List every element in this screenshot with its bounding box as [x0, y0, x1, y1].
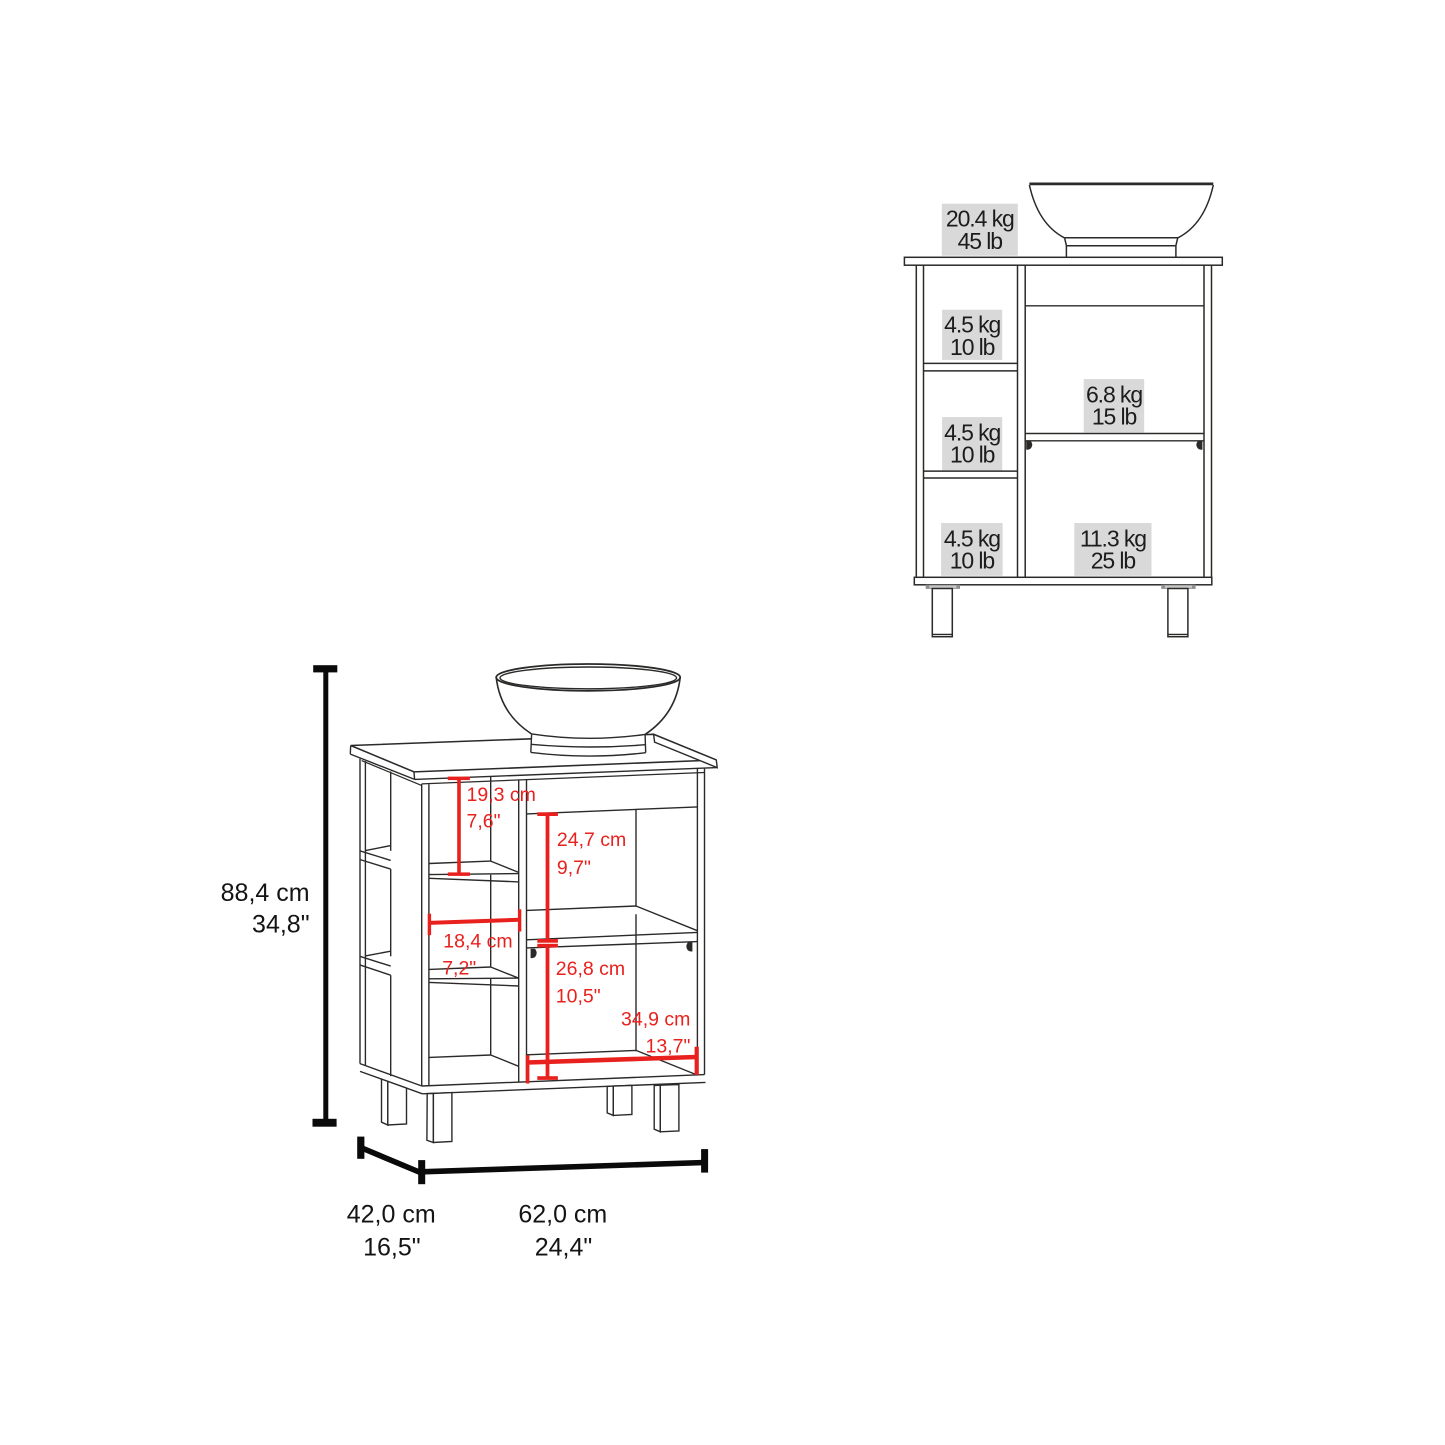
- svg-text:18,4 cm: 18,4 cm: [443, 930, 512, 952]
- svg-text:15 lb: 15 lb: [1092, 404, 1137, 430]
- svg-text:10 lb: 10 lb: [950, 442, 995, 468]
- svg-text:16,5": 16,5": [363, 1234, 421, 1262]
- svg-text:10,5": 10,5": [556, 986, 601, 1008]
- svg-text:34,9 cm: 34,9 cm: [621, 1008, 690, 1030]
- svg-text:10 lb: 10 lb: [950, 548, 995, 574]
- svg-text:88,4 cm: 88,4 cm: [221, 879, 310, 907]
- svg-text:19,3 cm: 19,3 cm: [467, 784, 536, 806]
- svg-text:62,0 cm: 62,0 cm: [518, 1200, 607, 1228]
- svg-text:42,0 cm: 42,0 cm: [347, 1200, 436, 1228]
- svg-text:25 lb: 25 lb: [1091, 548, 1136, 574]
- svg-text:7,2": 7,2": [442, 958, 476, 980]
- svg-text:45 lb: 45 lb: [958, 228, 1003, 254]
- svg-text:10 lb: 10 lb: [950, 334, 995, 360]
- svg-text:13,7": 13,7": [646, 1035, 691, 1057]
- svg-text:26,8 cm: 26,8 cm: [556, 958, 625, 980]
- svg-text:24,4": 24,4": [535, 1234, 593, 1262]
- svg-text:34,8": 34,8": [252, 910, 310, 938]
- svg-text:9,7": 9,7": [557, 857, 591, 879]
- svg-text:7,6": 7,6": [467, 811, 501, 833]
- svg-text:24,7 cm: 24,7 cm: [557, 829, 626, 851]
